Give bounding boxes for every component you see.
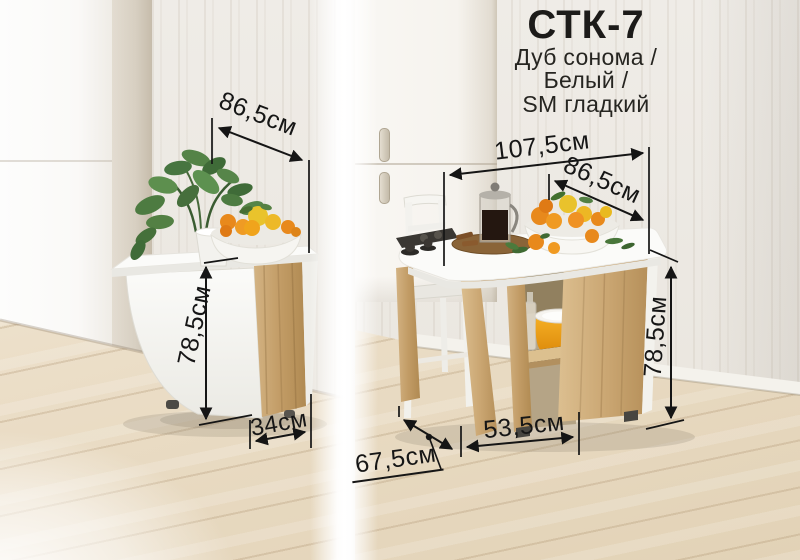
product-model: СТК-7 — [455, 4, 717, 46]
product-finish-line-3: SM гладкий — [455, 93, 717, 116]
title-block: СТК-7 Дуб сонома / Белый / SM гладкий — [455, 4, 717, 116]
product-finish-line-2: Белый / — [455, 69, 717, 92]
product-showcase: 86,5см 78,5см 34см 107,5см 86,5см 78,5см… — [0, 0, 800, 560]
product-finish-line-1: Дуб сонома / — [455, 46, 717, 69]
